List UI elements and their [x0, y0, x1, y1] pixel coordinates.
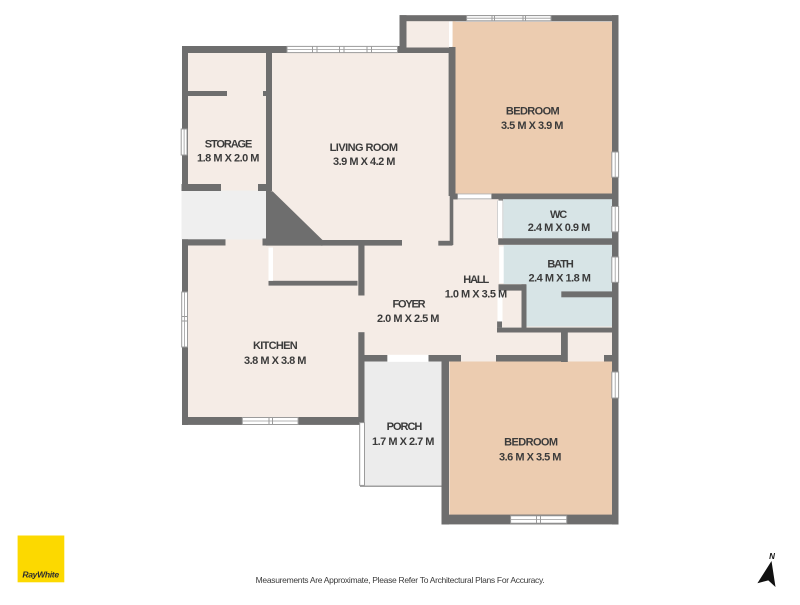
svg-text:BATH: BATH — [547, 259, 573, 271]
svg-text:BEDROOM: BEDROOM — [506, 106, 560, 118]
svg-text:RayWhite: RayWhite — [22, 569, 59, 579]
svg-text:Measurements Are Approximate,: Measurements Are Approximate, Please Ref… — [256, 575, 545, 585]
svg-text:WC: WC — [550, 209, 567, 221]
svg-text:LIVING ROOM: LIVING ROOM — [330, 142, 398, 154]
svg-text:1.8 M X 2.0 M: 1.8 M X 2.0 M — [197, 153, 259, 165]
svg-text:N: N — [769, 552, 775, 561]
svg-text:1.0 M X 3.5 M: 1.0 M X 3.5 M — [445, 289, 507, 301]
svg-text:3.9 M X 4.2 M: 3.9 M X 4.2 M — [333, 156, 395, 168]
svg-text:BEDROOM: BEDROOM — [504, 437, 558, 449]
svg-text:2.4 M X 1.8 M: 2.4 M X 1.8 M — [529, 273, 591, 285]
svg-text:3.8 M X 3.8 M: 3.8 M X 3.8 M — [244, 355, 306, 367]
svg-text:3.6 M X 3.5 M: 3.6 M X 3.5 M — [499, 452, 561, 464]
svg-text:HALL: HALL — [463, 274, 489, 286]
svg-text:KITCHEN: KITCHEN — [253, 340, 298, 352]
svg-text:PORCH: PORCH — [387, 421, 423, 433]
svg-text:2.0 M X 2.5 M: 2.0 M X 2.5 M — [377, 313, 439, 325]
svg-text:3.5 M X 3.9 M: 3.5 M X 3.9 M — [501, 120, 563, 132]
svg-text:2.4 M X 0.9 M: 2.4 M X 0.9 M — [528, 222, 590, 234]
svg-text:STORAGE: STORAGE — [205, 139, 252, 151]
svg-text:1.7 M X 2.7 M: 1.7 M X 2.7 M — [372, 436, 434, 448]
svg-text:FOYER: FOYER — [392, 298, 425, 310]
